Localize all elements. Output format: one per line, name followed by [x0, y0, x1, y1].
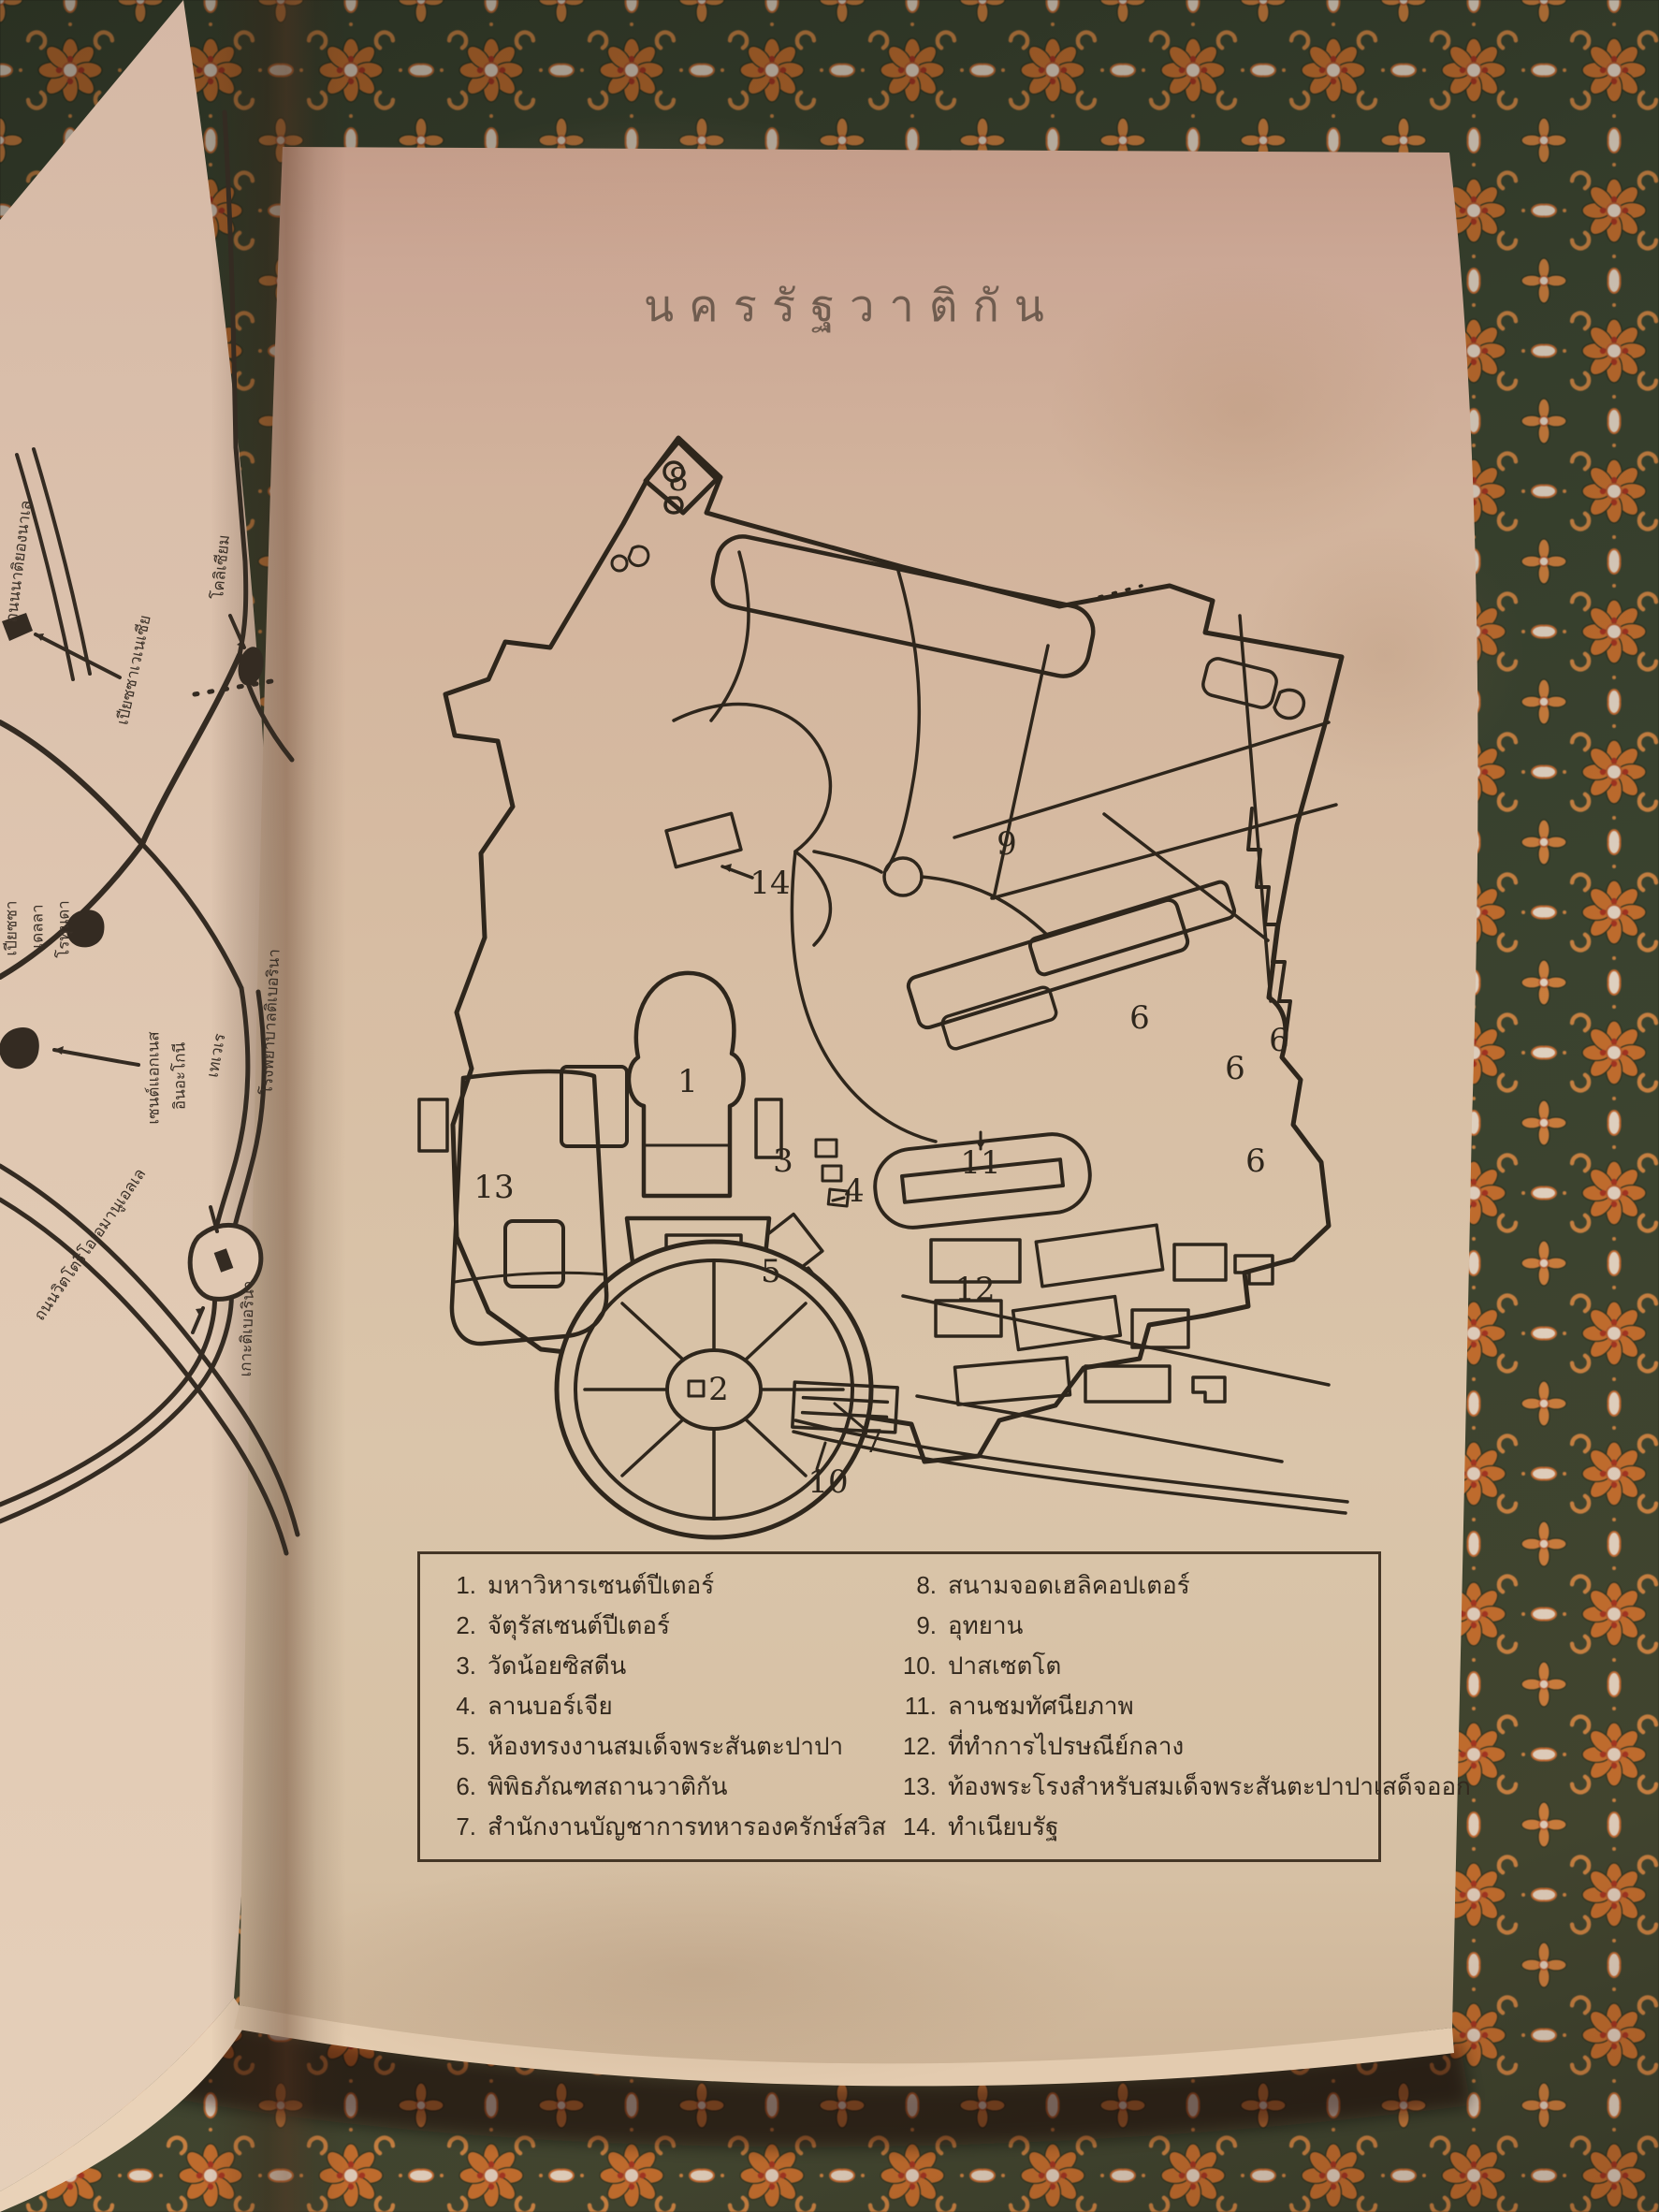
legend-left-column: 1.มหาวิหารเซนต์ปีเตอร์ 2.จัตุรัสเซนต์ปีเ…: [433, 1565, 880, 1847]
map-number-13: 13: [473, 1169, 514, 1206]
map-number-6c: 6: [1225, 1050, 1245, 1087]
map-number-6a: 6: [1129, 999, 1150, 1037]
page-title: นครรัฐวาติกัน: [524, 270, 1179, 341]
left-sant-agnese-label-1: เซนต์แอกเนส: [141, 1031, 167, 1124]
legend-item-7: 7.สำนักงานบัญชาการทหารองครักษ์สวิส: [433, 1807, 880, 1847]
legend-item-10: 10.ปาสเซตโต: [894, 1646, 1373, 1686]
map-legend-box: 1.มหาวิหารเซนต์ปีเตอร์ 2.จัตุรัสเซนต์ปีเ…: [417, 1551, 1381, 1862]
legend-item-6: 6.พิพิธภัณฑสถานวาติกัน: [433, 1767, 880, 1807]
map-number-6d: 6: [1245, 1142, 1266, 1180]
legend-item-9: 9.อุทยาน: [894, 1606, 1373, 1646]
legend-item-5: 5.ห้องทรงงานสมเด็จพระสันตะปาปา: [433, 1726, 880, 1767]
map-number-5: 5: [761, 1253, 781, 1290]
map-number-8: 8: [668, 461, 689, 499]
legend-item-14: 14.ทำเนียบรัฐ: [894, 1807, 1373, 1847]
map-number-9: 9: [997, 825, 1017, 863]
legend-right-column: 8.สนามจอดเฮลิคอปเตอร์ 9.อุทยาน 10.ปาสเซต…: [894, 1565, 1373, 1847]
map-number-10: 10: [808, 1463, 848, 1501]
map-number-12: 12: [954, 1271, 995, 1308]
legend-item-3: 3.วัดน้อยซิสตีน: [433, 1646, 880, 1686]
map-number-7: 7: [863, 1423, 883, 1461]
map-number-14: 14: [749, 865, 790, 902]
left-tiber-island-label: เกาะติเบอรินา: [233, 1280, 262, 1377]
legend-item-8: 8.สนามจอดเฮลิคอปเตอร์: [894, 1565, 1373, 1606]
map-number-6b: 6: [1269, 1022, 1289, 1059]
left-piazza-rotonda-label-3: โรทุนดา: [51, 900, 77, 958]
legend-item-13: 13.ท้องพระโรงสำหรับสมเด็จพระสันตะปาปาเสด…: [894, 1767, 1373, 1807]
left-piazza-rotonda-label-2: เดลลา: [25, 904, 51, 948]
left-sant-agnese-label-2: อินอะโกนี: [167, 1042, 193, 1110]
legend-item-4: 4.ลานบอร์เจีย: [433, 1686, 880, 1726]
legend-item-1: 1.มหาวิหารเซนต์ปีเตอร์: [433, 1565, 880, 1606]
map-number-11: 11: [960, 1144, 1000, 1182]
vatican-map: 8 14 9 6 6 6 6 1 11 13 3 4 5 12 2 7 10: [393, 412, 1385, 1544]
map-number-2: 2: [708, 1371, 729, 1408]
legend-item-2: 2.จัตุรัสเซนต์ปีเตอร์: [433, 1606, 880, 1646]
legend-item-11: 11.ลานชมทัศนียภาพ: [894, 1686, 1373, 1726]
book-photo: ถนนนาติยองนาเล เปียซซาเวเนเซีย โคลิเซียม…: [0, 0, 1659, 2212]
left-piazza-rotonda-label-1: เปียซซา: [0, 900, 24, 955]
map-number-3: 3: [773, 1142, 793, 1180]
map-number-1: 1: [677, 1063, 698, 1100]
legend-item-12: 12.ที่ทำการไปรษณีย์กลาง: [894, 1726, 1373, 1767]
map-number-4: 4: [844, 1172, 865, 1210]
